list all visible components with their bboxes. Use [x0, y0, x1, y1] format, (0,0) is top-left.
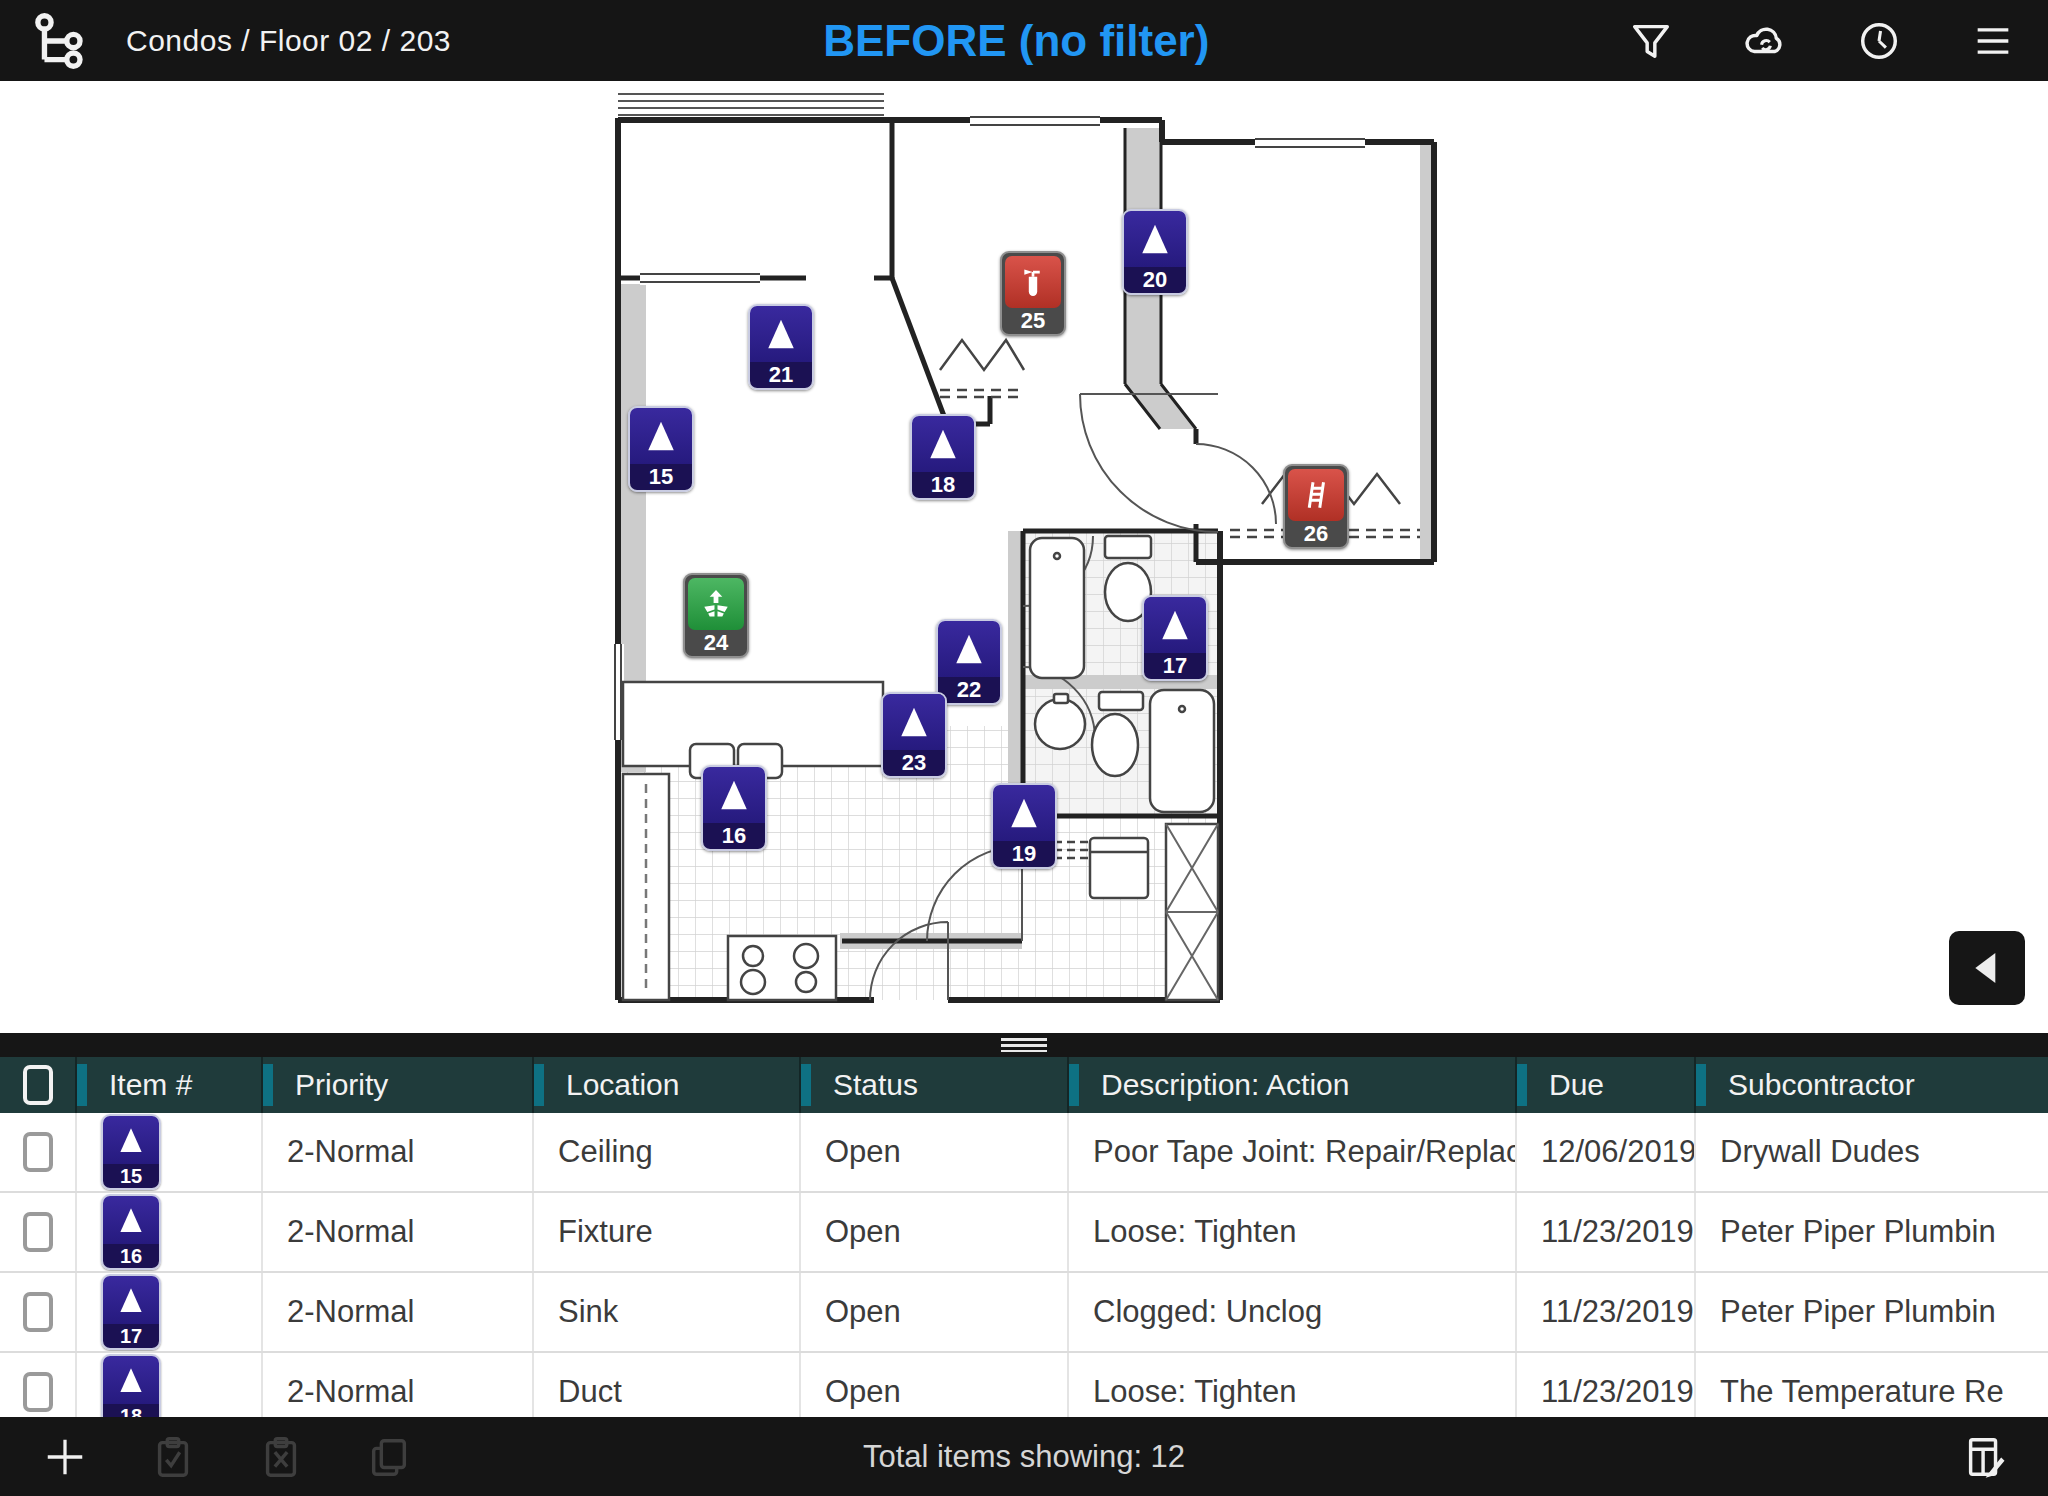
column-header-priority[interactable]: Priority: [261, 1057, 532, 1113]
marker-type-icon: [1137, 221, 1173, 257]
marker-number: 22: [938, 677, 1000, 703]
marker-type-icon: [763, 316, 799, 352]
marker-number: 16: [703, 823, 765, 849]
marker-number: 26: [1285, 521, 1347, 547]
location-cell: Sink: [532, 1273, 799, 1351]
marker-type-icon: [643, 418, 679, 454]
column-accent-bar: [1517, 1064, 1527, 1106]
cloud-sync-icon[interactable]: [1740, 16, 1790, 66]
marker-type-icon: [1006, 795, 1042, 831]
plan-marker[interactable]: 16: [701, 765, 767, 851]
hierarchy-icon[interactable]: [30, 12, 92, 70]
floor-plan-viewport[interactable]: [0, 81, 2048, 1033]
column-accent-bar: [77, 1064, 87, 1106]
column-header-location[interactable]: Location: [532, 1057, 799, 1113]
column-header-subcontractor[interactable]: Subcontractor: [1694, 1057, 2048, 1113]
due-cell: 11/23/2019: [1515, 1353, 1694, 1417]
bottom-bar: Total items showing: 12: [0, 1417, 2048, 1496]
priority-cell: 2-Normal: [261, 1193, 532, 1271]
plan-marker[interactable]: 22: [936, 619, 1002, 705]
item-cell: 18: [75, 1353, 261, 1417]
plan-marker[interactable]: 19: [991, 783, 1057, 869]
copy-items-button[interactable]: [354, 1417, 424, 1496]
table-row[interactable]: 17 2-Normal Sink Open Clogged: Unclog 11…: [0, 1273, 2048, 1353]
floor-plan-drawing: [610, 84, 1450, 1016]
breadcrumb[interactable]: Condos / Floor 02 / 203: [126, 0, 451, 81]
due-cell: 11/23/2019: [1515, 1193, 1694, 1271]
add-item-button[interactable]: [30, 1417, 100, 1496]
marker-type-icon: [1015, 264, 1051, 300]
table-header: Item # Priority Location Status Descript…: [0, 1057, 2048, 1113]
plan-marker[interactable]: 23: [881, 692, 947, 778]
description-cell: Poor Tape Joint: Repair/Replace: [1067, 1113, 1515, 1191]
location-cell: Duct: [532, 1353, 799, 1417]
copy-icon: [366, 1434, 412, 1480]
item-marker-icon: 18: [101, 1354, 161, 1417]
priority-cell: 2-Normal: [261, 1353, 532, 1417]
marker-number: 15: [103, 1164, 159, 1188]
marker-number: 17: [103, 1324, 159, 1348]
plan-marker[interactable]: 25: [1000, 251, 1066, 336]
marker-type-icon: [951, 631, 987, 667]
marker-type-icon: [925, 426, 961, 462]
item-marker-icon: 17: [101, 1274, 161, 1350]
row-checkbox[interactable]: [23, 1132, 53, 1172]
reject-items-button[interactable]: [246, 1417, 316, 1496]
item-cell: 15: [75, 1113, 261, 1191]
column-accent-bar: [801, 1064, 811, 1106]
select-all-checkbox-cell[interactable]: [0, 1057, 75, 1113]
status-cell: Open: [799, 1193, 1067, 1271]
row-checkbox[interactable]: [23, 1372, 53, 1412]
row-checkbox-cell[interactable]: [0, 1353, 75, 1417]
subcontractor-cell: The Temperature Re: [1694, 1353, 2048, 1417]
table-row[interactable]: 18 2-Normal Duct Open Loose: Tighten 11/…: [0, 1353, 2048, 1417]
marker-type-icon: [1298, 477, 1334, 513]
item-marker-icon: 15: [101, 1114, 161, 1190]
approve-items-button[interactable]: [138, 1417, 208, 1496]
priority-cell: 2-Normal: [261, 1113, 532, 1191]
plan-marker[interactable]: 17: [1142, 595, 1208, 681]
subcontractor-cell: Drywall Dudes: [1694, 1113, 2048, 1191]
marker-type-icon: [116, 1365, 146, 1395]
marker-type-icon: [1157, 607, 1193, 643]
collapse-table-button[interactable]: [1949, 931, 2025, 1005]
plan-marker[interactable]: 20: [1122, 209, 1188, 295]
table-edit-icon: [1962, 1434, 2008, 1480]
divider-grip-icon: [1001, 1038, 1047, 1052]
plan-marker[interactable]: 18: [910, 414, 976, 500]
top-bar: Condos / Floor 02 / 203 BEFORE (no filte…: [0, 0, 2048, 81]
marker-type-icon: [716, 777, 752, 813]
due-cell: 12/06/2019 (: [1515, 1113, 1694, 1191]
column-accent-bar: [1696, 1064, 1706, 1106]
filter-icon[interactable]: [1626, 16, 1676, 66]
marker-number: 25: [1002, 308, 1064, 334]
marker-number: 17: [1144, 653, 1206, 679]
plan-table-divider[interactable]: [0, 1033, 2048, 1057]
column-header-item[interactable]: Item #: [75, 1057, 261, 1113]
plan-marker[interactable]: 21: [748, 304, 814, 390]
marker-type-icon: [116, 1205, 146, 1235]
marker-number: 23: [883, 750, 945, 776]
column-accent-bar: [534, 1064, 544, 1106]
menu-icon[interactable]: [1968, 16, 2018, 66]
plan-marker[interactable]: 15: [628, 406, 694, 492]
plan-marker[interactable]: 26: [1283, 464, 1349, 549]
marker-number: 24: [685, 630, 747, 656]
due-cell: 11/23/2019: [1515, 1273, 1694, 1351]
column-accent-bar: [1069, 1064, 1079, 1106]
marker-type-icon: [698, 586, 734, 622]
marker-number: 19: [993, 841, 1055, 867]
history-icon[interactable]: [1854, 16, 1904, 66]
location-cell: Fixture: [532, 1193, 799, 1271]
priority-cell: 2-Normal: [261, 1273, 532, 1351]
plan-marker[interactable]: 24: [683, 573, 749, 658]
items-table: Item # Priority Location Status Descript…: [0, 1057, 2048, 1417]
marker-type-icon: [116, 1285, 146, 1315]
marker-number: 18: [912, 472, 974, 498]
subcontractor-cell: Peter Piper Plumbin: [1694, 1273, 2048, 1351]
marker-type-icon: [116, 1125, 146, 1155]
marker-type-icon: [896, 704, 932, 740]
row-checkbox-cell[interactable]: [0, 1193, 75, 1271]
table-row[interactable]: 16 2-Normal Fixture Open Loose: Tighten …: [0, 1193, 2048, 1273]
table-body: 15 2-Normal Ceiling Open Poor Tape Joint…: [0, 1113, 2048, 1417]
plus-icon: [42, 1434, 88, 1480]
row-checkbox-cell[interactable]: [0, 1113, 75, 1191]
description-cell: Clogged: Unclog: [1067, 1273, 1515, 1351]
status-cell: Open: [799, 1113, 1067, 1191]
select-all-checkbox[interactable]: [23, 1065, 53, 1105]
item-marker-icon: 16: [101, 1194, 161, 1270]
edit-table-button[interactable]: [1950, 1417, 2020, 1496]
description-cell: Loose: Tighten: [1067, 1193, 1515, 1271]
row-checkbox[interactable]: [23, 1292, 53, 1332]
marker-number: 15: [630, 464, 692, 490]
column-header-description[interactable]: Description: Action: [1067, 1057, 1515, 1113]
punchlist-app: { "header": { "breadcrumb": "Condos / Fl…: [0, 0, 2048, 1496]
row-checkbox[interactable]: [23, 1212, 53, 1252]
status-cell: Open: [799, 1273, 1067, 1351]
left-triangle-icon: [1967, 946, 2007, 990]
marker-number: 21: [750, 362, 812, 388]
description-cell: Loose: Tighten: [1067, 1353, 1515, 1417]
marker-number: 16: [103, 1244, 159, 1268]
item-cell: 16: [75, 1193, 261, 1271]
column-header-status[interactable]: Status: [799, 1057, 1067, 1113]
column-accent-bar: [263, 1064, 273, 1106]
marker-number: 20: [1124, 267, 1186, 293]
clipboard-x-icon: [258, 1434, 304, 1480]
clipboard-check-icon: [150, 1434, 196, 1480]
status-cell: Open: [799, 1353, 1067, 1417]
column-header-due[interactable]: Due: [1515, 1057, 1694, 1113]
table-row[interactable]: 15 2-Normal Ceiling Open Poor Tape Joint…: [0, 1113, 2048, 1193]
item-cell: 17: [75, 1273, 261, 1351]
page-title: BEFORE (no filter): [823, 0, 1209, 81]
marker-number: 18: [103, 1404, 159, 1417]
row-checkbox-cell[interactable]: [0, 1273, 75, 1351]
subcontractor-cell: Peter Piper Plumbin: [1694, 1193, 2048, 1271]
location-cell: Ceiling: [532, 1113, 799, 1191]
